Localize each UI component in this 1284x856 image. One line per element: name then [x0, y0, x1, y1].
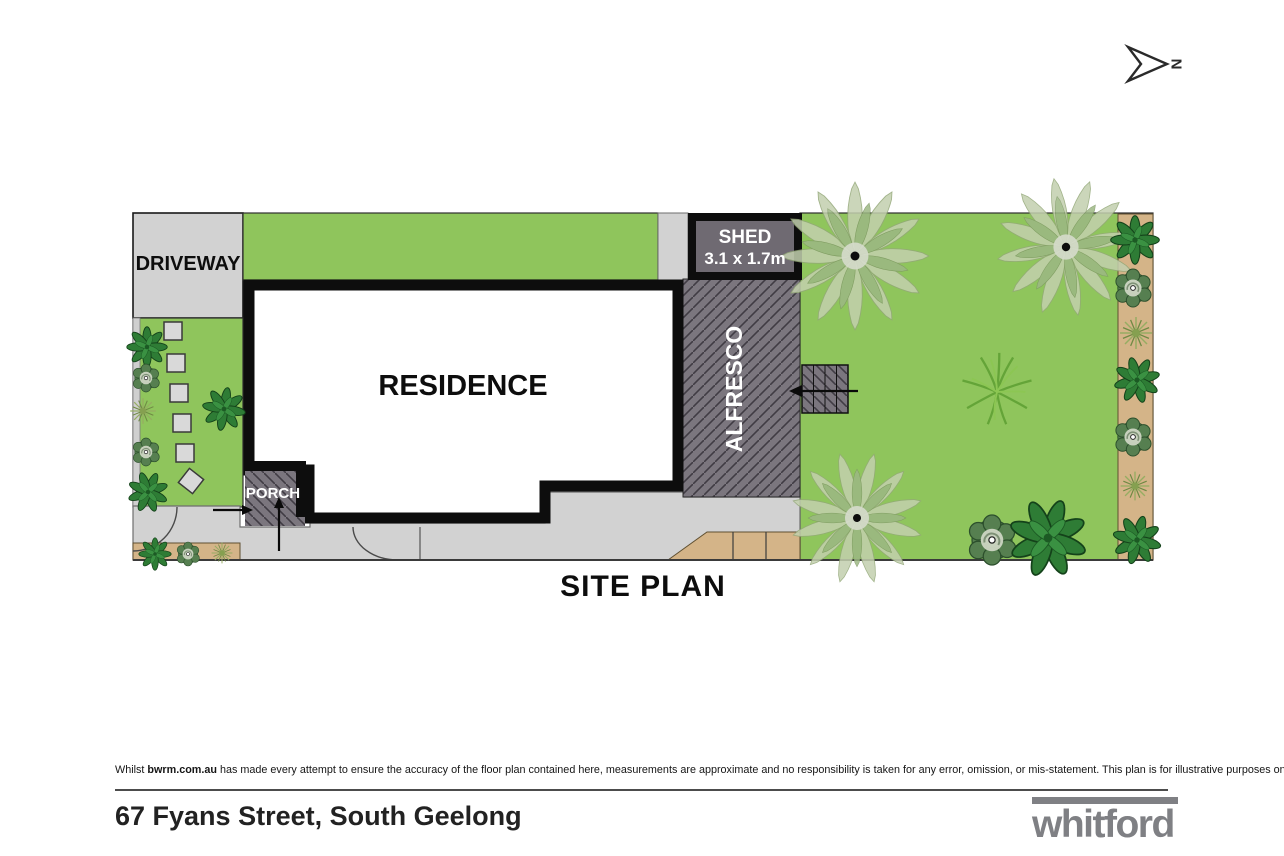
porch-label: PORCH — [246, 485, 300, 502]
north-arrow: N — [1128, 47, 1185, 81]
site-plan-drawing: DRIVEWAY RESIDENCE SHED 3.1 x 1.7m ALFRE… — [0, 0, 1284, 856]
shed-size-label: 3.1 x 1.7m — [704, 249, 785, 268]
top-lawn-strip — [243, 213, 658, 280]
alfresco-label: ALFRESCO — [721, 326, 747, 453]
north-label: N — [1168, 59, 1185, 70]
disclaimer-prefix: Whilst — [115, 764, 147, 776]
residence-label: RESIDENCE — [378, 370, 547, 402]
agave-plant — [127, 327, 168, 368]
agave-plant — [1111, 216, 1160, 265]
garden-steps — [802, 365, 848, 413]
shed-label: SHED — [719, 227, 772, 248]
agave-plant — [139, 538, 171, 570]
footer-divider — [115, 789, 1168, 791]
plan-title: SITE PLAN — [133, 570, 1153, 604]
property-address: 67 Fyans Street, South Geelong — [115, 801, 522, 832]
disclaimer-brand: bwrm.com.au — [147, 764, 217, 776]
side-path-strip — [658, 213, 688, 280]
site-plan-page: DRIVEWAY RESIDENCE SHED 3.1 x 1.7m ALFRE… — [0, 0, 1284, 856]
agency-logo-name: whitford — [1032, 805, 1178, 846]
disclaimer-text: Whilst bwrm.com.au has made every attemp… — [115, 764, 1175, 776]
disclaimer-rest: has made every attempt to ensure the acc… — [217, 764, 1284, 776]
driveway-label: DRIVEWAY — [136, 253, 242, 275]
agency-logo: whitford — [1032, 797, 1178, 846]
